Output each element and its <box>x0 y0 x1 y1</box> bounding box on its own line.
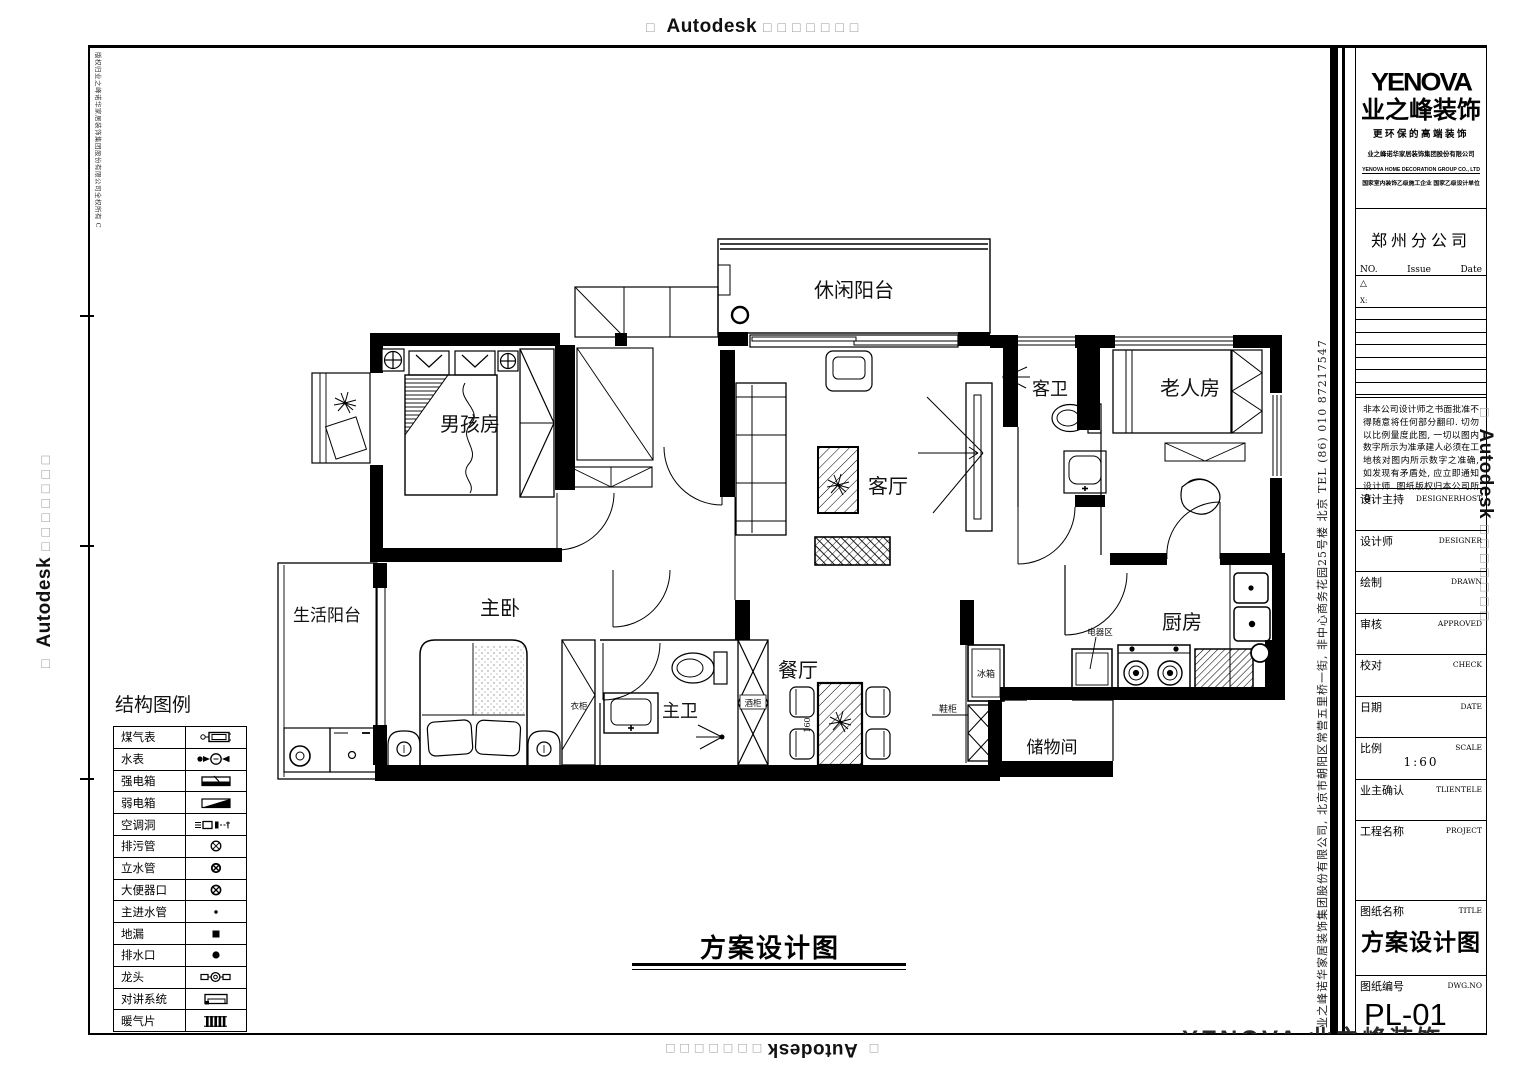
legend-title: 结构图例 <box>115 690 247 717</box>
page: { "watermark": { "brand": "Autodesk", "b… <box>0 0 1528 1080</box>
yenova-logo: YENOVA <box>1356 68 1486 97</box>
field-en: DRAWN <box>1451 574 1482 590</box>
label-appliance-area: 电器区 <box>1087 627 1113 638</box>
tofu-box: □ <box>646 19 660 35</box>
field-clientele: 业主确认 TLIENTELE <box>1356 779 1486 798</box>
label-master-bedroom: 主卧 <box>480 596 520 620</box>
field-cn: 绘制 <box>1360 574 1382 590</box>
watermark-left: □Autodesk□□□□□□□ <box>34 450 56 668</box>
field-en: DWG.NO <box>1447 978 1482 994</box>
tofu-boxes: □□□□□□□ <box>37 450 53 551</box>
floor-plan-svg: 休闲阳台 男孩房 客厅 客卫 老人房 生活阳台 主卧 主卫 餐厅 厨房 储物间 … <box>270 225 1330 805</box>
field-cn: 业主确认 <box>1360 782 1404 798</box>
company-block: 业之峰诺华家居装饰集团股份有限公司 YENOVA HOME DECORATION… <box>1356 149 1486 187</box>
field-date: 日期 DATE <box>1356 696 1486 715</box>
legend: 结构图例 煤气表 水表 强电箱 弱电箱 空调洞 <box>113 690 247 1032</box>
field-drawn: 绘制 DRAWN <box>1356 571 1486 590</box>
brand-name: 业之峰装饰 <box>1356 98 1486 123</box>
autodesk-wordmark: Autodesk <box>660 16 763 37</box>
label-dim-160: 160 <box>803 717 812 732</box>
legend-label: 暖气片 <box>114 1010 186 1031</box>
frame-tick-2 <box>80 545 94 547</box>
watermark-top: □Autodesk□□□□□□□ <box>646 16 864 38</box>
sewage-pipe-icon <box>186 836 246 857</box>
legend-label: 龙头 <box>114 967 186 988</box>
field-cn: 比例 <box>1360 740 1382 756</box>
field-cn: 工程名称 <box>1360 823 1404 839</box>
revision-marker: △ <box>1360 279 1367 289</box>
legend-row: 水表 <box>114 749 246 771</box>
field-designer: 设计师 DESIGNER <box>1356 530 1486 549</box>
caption-underline-1 <box>632 963 906 966</box>
legend-label: 空调洞 <box>114 814 186 835</box>
living-room-furniture <box>736 351 992 565</box>
field-en: APPROVED <box>1438 616 1482 632</box>
field-en: TLIENTELE <box>1436 782 1482 798</box>
cutoff-watermark-text: YENOVA 业之峰装饰 <box>1182 1026 1443 1034</box>
master-bedroom-furniture <box>388 640 595 765</box>
legend-row: 立水管 <box>114 858 246 880</box>
brand-slogan: 更环保的高端装饰 <box>1356 126 1486 140</box>
legend-label: 主进水管 <box>114 901 186 922</box>
watermark-bottom: □Autodesk□□□□□□□ <box>660 1038 878 1060</box>
gas-meter-icon <box>186 727 246 748</box>
frame-divider-thick <box>1330 45 1338 1035</box>
label-elder-room: 老人房 <box>1160 376 1220 400</box>
legend-row: 主进水管 <box>114 901 246 923</box>
label-boys-room: 男孩房 <box>440 412 500 436</box>
drain-outlet-icon <box>186 945 246 966</box>
tofu-box: □ <box>37 654 53 668</box>
strong-electric-box-icon <box>186 771 246 792</box>
copyright-vertical-text: 版权归业之峰诺华家居装饰集团股份有限公司全权所有 C <box>94 52 104 228</box>
legend-label: 弱电箱 <box>114 792 186 813</box>
weak-electric-box-icon <box>186 792 246 813</box>
water-meter-icon <box>186 749 246 770</box>
scale-value: 1:60 <box>1356 755 1486 769</box>
company-en: YENOVA HOME DECORATION GROUP CO., LTD <box>1362 167 1480 174</box>
legend-label: 排水口 <box>114 945 186 966</box>
toilet-outlet-icon <box>186 880 246 901</box>
tofu-boxes: □□□□□□□ <box>660 1041 761 1057</box>
sheet-title: 方案设计图 <box>1356 923 1486 957</box>
label-leisure-balcony: 休闲阳台 <box>814 278 894 302</box>
riser-pipe-icon <box>186 858 246 879</box>
legend-row: 龙头 <box>114 967 246 989</box>
legend-label: 水表 <box>114 749 186 770</box>
field-cn: 设计主持 <box>1360 491 1404 507</box>
legend-label: 大便器口 <box>114 880 186 901</box>
legend-label: 立水管 <box>114 858 186 879</box>
legend-row: 大便器口 <box>114 880 246 902</box>
field-en: TITLE <box>1459 903 1482 919</box>
tofu-boxes: □□□□□□□ <box>763 19 864 35</box>
brand-logo: YENOVA 业之峰装饰 更环保的高端装饰 <box>1356 67 1486 140</box>
label-master-bath: 主卫 <box>662 701 698 722</box>
legend-row: 空调洞 <box>114 814 246 836</box>
legend-row: 强电箱 <box>114 771 246 793</box>
field-cn: 设计师 <box>1360 533 1393 549</box>
company-cn: 业之峰诺华家居装饰集团股份有限公司 <box>1356 149 1486 158</box>
label-guest-bath: 客卫 <box>1032 379 1068 400</box>
field-en: SCALE <box>1455 740 1482 756</box>
rev-issue: Issue <box>1407 265 1431 275</box>
radiator-icon <box>186 1010 246 1031</box>
rev-date: Date <box>1460 265 1482 275</box>
label-living-room: 客厅 <box>868 474 908 498</box>
field-en: DATE <box>1461 699 1483 715</box>
field-en: DESIGNER <box>1439 533 1482 549</box>
label-shoe-cabinet: 鞋柜 <box>939 703 957 715</box>
legend-label: 排污管 <box>114 836 186 857</box>
field-title: 图纸名称 TITLE <box>1356 900 1486 919</box>
field-cn: 日期 <box>1360 699 1382 715</box>
intercom-icon <box>186 989 246 1010</box>
tofu-box: □ <box>864 1041 878 1057</box>
main-water-inlet-icon <box>186 901 246 922</box>
frame-top <box>88 45 1487 48</box>
label-storage: 储物间 <box>1027 738 1078 758</box>
title-block: YENOVA 业之峰装饰 更环保的高端装饰 业之峰诺华家居装饰集团股份有限公司 … <box>1356 45 1486 1035</box>
legend-row: 地漏 <box>114 923 246 945</box>
field-scale: 比例 SCALE <box>1356 737 1486 756</box>
field-cn: 校对 <box>1360 657 1382 673</box>
company-certs: 国家室内装饰乙级施工企业 国家乙级设计单位 <box>1356 178 1486 187</box>
field-check: 校对 CHECK <box>1356 654 1486 673</box>
tb-divider <box>1356 208 1486 209</box>
legend-row: 排水口 <box>114 945 246 967</box>
label-kitchen: 厨房 <box>1162 610 1202 634</box>
elder-room-furniture <box>1113 350 1262 514</box>
field-en: CHECK <box>1453 657 1482 673</box>
label-dining-room: 餐厅 <box>778 658 818 682</box>
legend-label: 对讲系统 <box>114 989 186 1010</box>
frame-tick-1 <box>80 315 94 317</box>
legend-label: 地漏 <box>114 923 186 944</box>
leisure-balcony-items <box>732 307 748 323</box>
field-designerhost: 设计主持 DESIGNERHOST <box>1356 488 1486 507</box>
frame-divider-thin <box>1342 45 1345 1035</box>
field-project: 工程名称 PROJECT <box>1356 820 1486 839</box>
field-cn: 图纸编号 <box>1360 978 1404 994</box>
autodesk-wordmark: Autodesk <box>761 1039 864 1060</box>
label-fridge: 冰箱 <box>977 668 995 680</box>
legend-label: 强电箱 <box>114 771 186 792</box>
label-life-balcony: 生活阳台 <box>293 606 361 626</box>
field-cn: 图纸名称 <box>1360 903 1404 919</box>
faucet-icon <box>186 967 246 988</box>
floor-plan: 休闲阳台 男孩房 客厅 客卫 老人房 生活阳台 主卧 主卫 餐厅 厨房 储物间 … <box>270 225 1330 805</box>
floor-drain-icon <box>186 923 246 944</box>
label-wine-cabinet: 酒柜 <box>744 698 762 709</box>
field-en: DESIGNERHOST <box>1416 491 1482 507</box>
field-en: PROJECT <box>1446 823 1482 839</box>
ac-hole-icon <box>186 814 246 835</box>
plan-caption: 方案设计图 <box>620 928 920 965</box>
legend-row: 暖气片 <box>114 1010 246 1031</box>
rev-no: NO. <box>1360 265 1378 275</box>
legend-label: 煤气表 <box>114 727 186 748</box>
caption-underline-2 <box>632 969 906 970</box>
cutoff-watermark: YENOVA 业之峰装饰 <box>1182 1019 1522 1034</box>
legend-row: 煤气表 <box>114 727 246 749</box>
label-wardrobe: 衣柜 <box>570 701 588 712</box>
field-cn: 审核 <box>1360 616 1382 632</box>
legend-row: 对讲系统 <box>114 989 246 1011</box>
field-dwgno: 图纸编号 DWG.NO <box>1356 975 1486 994</box>
life-balcony-items <box>284 728 376 772</box>
revision-header: NO. Issue Date <box>1356 265 1486 276</box>
frame-left <box>88 45 90 1035</box>
autodesk-wordmark: Autodesk <box>34 551 55 654</box>
branch-name: 郑州分公司 <box>1356 227 1486 251</box>
legend-row: 排污管 <box>114 836 246 858</box>
legend-row: 弱电箱 <box>114 792 246 814</box>
legend-table: 煤气表 水表 强电箱 弱电箱 空调洞 <box>113 726 247 1032</box>
revision-lines <box>1356 295 1486 395</box>
frame-tick-3 <box>80 778 94 780</box>
field-approved: 审核 APPROVED <box>1356 613 1486 632</box>
